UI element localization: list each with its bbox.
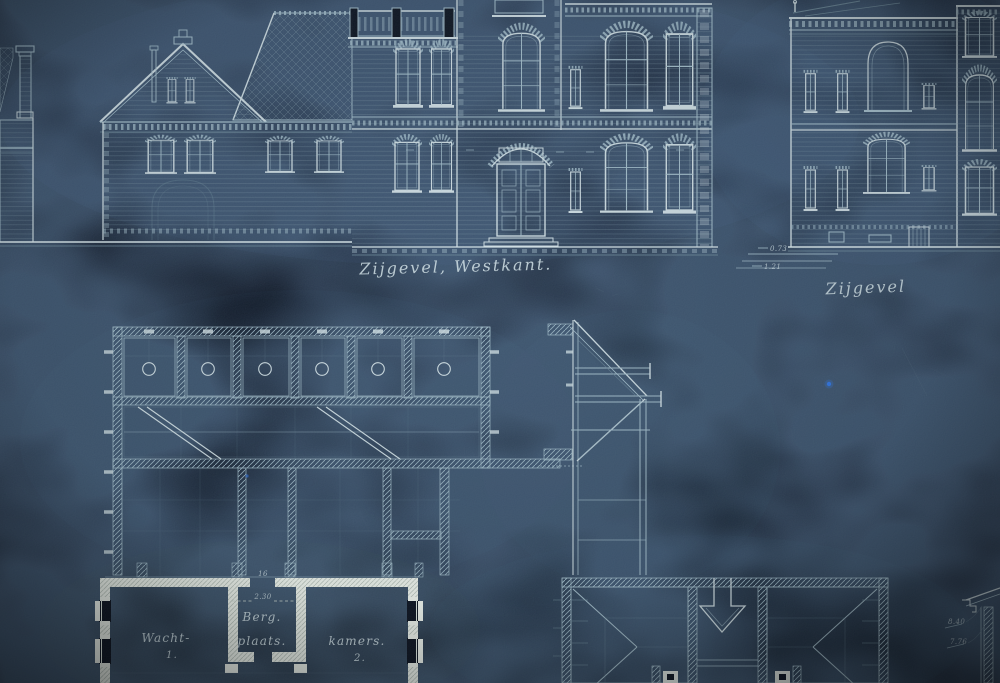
blueprint-canvas: 0.73 1.21 Zijgevel, Westkant. Zijgevel — [0, 0, 1000, 683]
vignette — [0, 0, 1000, 683]
blueprint-sheet: 0.73 1.21 Zijgevel, Westkant. Zijgevel — [0, 0, 1000, 683]
